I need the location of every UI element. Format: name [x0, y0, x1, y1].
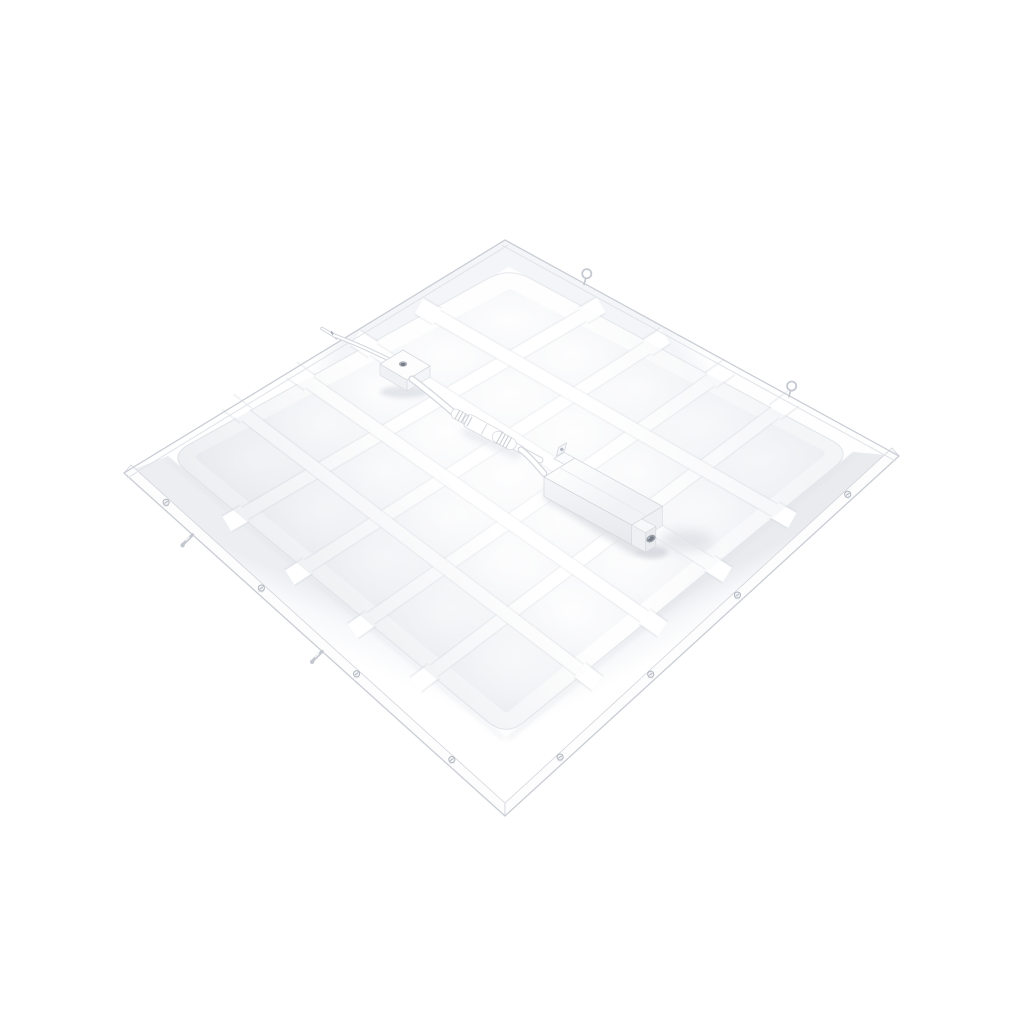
frame-screw: [648, 671, 654, 679]
driver-shadow: [659, 530, 713, 552]
junction-box-hole-core: [400, 363, 405, 366]
product-photo: White square LED flat panel ceiling ligh…: [0, 0, 1024, 1024]
led-panel-stage: [0, 0, 1024, 1024]
driver-tab-hole: [560, 448, 563, 451]
frame-screw: [449, 756, 455, 764]
frame-screw: [845, 491, 851, 499]
frame-screw: [354, 671, 360, 679]
frame-screw: [163, 499, 169, 507]
frame-screw: [734, 592, 740, 600]
frame-screw: [258, 585, 264, 593]
frame-screw: [557, 754, 563, 762]
led-panel-scene: [0, 0, 1024, 1024]
